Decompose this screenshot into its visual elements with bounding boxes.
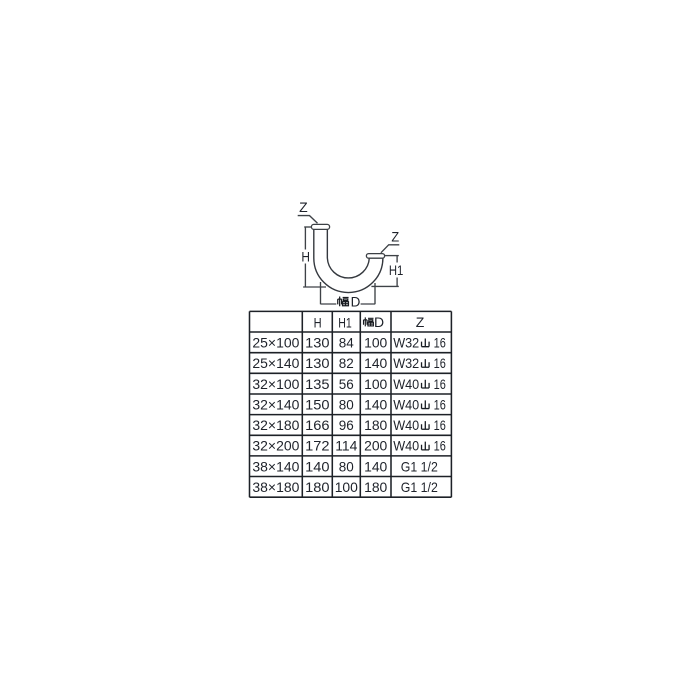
svg-text:172: 172 <box>305 438 330 454</box>
svg-text:G1 1/2: G1 1/2 <box>401 458 438 474</box>
svg-text:16: 16 <box>434 438 446 454</box>
svg-text:16: 16 <box>434 396 446 412</box>
svg-text:Z: Z <box>416 314 425 330</box>
svg-text:200: 200 <box>364 438 387 454</box>
svg-text:H: H <box>314 314 322 330</box>
svg-text:16: 16 <box>434 355 446 371</box>
svg-text:114: 114 <box>335 438 357 454</box>
svg-text:25×100: 25×100 <box>252 335 299 351</box>
svg-text:Z: Z <box>299 199 308 215</box>
svg-text:W40: W40 <box>393 417 419 433</box>
svg-text:H: H <box>301 249 310 265</box>
svg-text:180: 180 <box>364 479 387 495</box>
svg-text:32×100: 32×100 <box>252 376 299 392</box>
svg-text:Z: Z <box>391 229 399 245</box>
svg-text:140: 140 <box>305 458 330 474</box>
svg-text:56: 56 <box>339 376 354 392</box>
svg-text:32×180: 32×180 <box>252 417 299 433</box>
svg-text:80: 80 <box>339 458 354 474</box>
svg-text:D: D <box>351 294 361 309</box>
svg-text:W40: W40 <box>393 376 419 392</box>
svg-text:100: 100 <box>364 376 387 392</box>
svg-text:82: 82 <box>339 355 354 371</box>
svg-text:16: 16 <box>434 376 446 392</box>
svg-text:80: 80 <box>339 396 354 412</box>
svg-text:140: 140 <box>364 396 387 412</box>
svg-text:W40: W40 <box>393 438 419 454</box>
svg-text:150: 150 <box>305 396 330 412</box>
svg-text:140: 140 <box>364 458 387 474</box>
svg-text:180: 180 <box>305 479 330 495</box>
svg-text:H1: H1 <box>389 262 404 278</box>
svg-text:166: 166 <box>305 417 330 433</box>
svg-text:96: 96 <box>339 417 354 433</box>
svg-text:100: 100 <box>364 335 387 351</box>
svg-text:16: 16 <box>434 417 446 433</box>
svg-text:G1 1/2: G1 1/2 <box>401 479 438 495</box>
svg-text:100: 100 <box>335 479 358 495</box>
svg-text:H1: H1 <box>338 314 352 330</box>
svg-text:32×200: 32×200 <box>252 438 299 454</box>
svg-text:84: 84 <box>339 335 354 351</box>
svg-text:W40: W40 <box>393 396 419 412</box>
svg-text:140: 140 <box>364 355 387 371</box>
svg-text:D: D <box>374 314 384 330</box>
svg-text:180: 180 <box>364 417 387 433</box>
svg-text:32×140: 32×140 <box>252 396 299 412</box>
svg-text:16: 16 <box>434 335 446 351</box>
svg-text:38×180: 38×180 <box>252 479 299 495</box>
svg-text:38×140: 38×140 <box>252 458 299 474</box>
svg-text:130: 130 <box>305 355 330 371</box>
svg-text:W32: W32 <box>393 335 419 351</box>
svg-text:130: 130 <box>305 335 330 351</box>
svg-text:W32: W32 <box>393 355 419 371</box>
svg-text:25×140: 25×140 <box>252 355 299 371</box>
svg-text:135: 135 <box>305 376 330 392</box>
